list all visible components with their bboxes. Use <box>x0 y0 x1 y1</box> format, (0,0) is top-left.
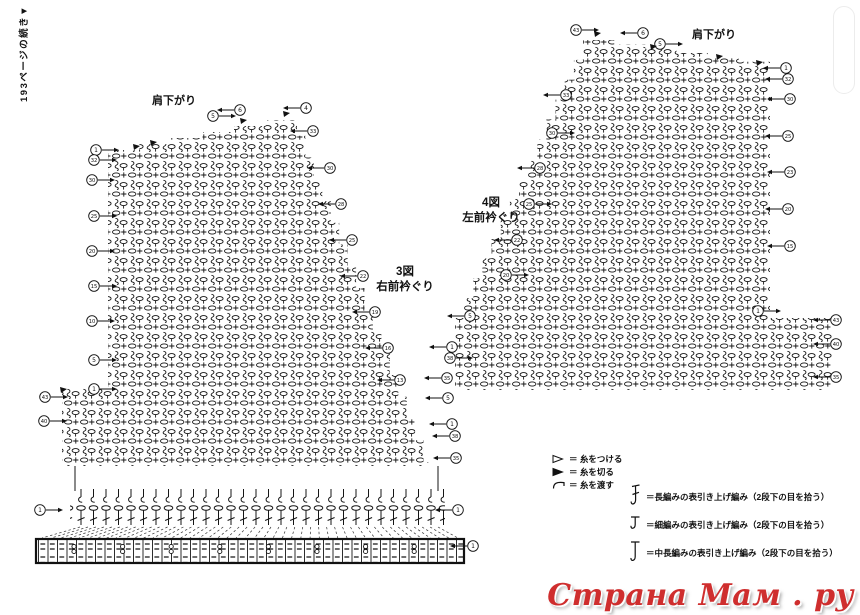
fan-line <box>162 527 183 538</box>
row-marker: 1 <box>35 505 63 516</box>
site-watermark: Страна Мам . ру <box>547 578 854 613</box>
faint-side-watermark <box>833 6 855 94</box>
row-marker: 6 <box>217 105 245 116</box>
fig3-number: 3図 <box>364 265 446 280</box>
fan-line <box>60 527 95 538</box>
attach-yarn-icon <box>552 454 569 464</box>
marker-arrow <box>217 108 222 113</box>
fig3-shoulder-label: 肩下がり <box>152 92 196 108</box>
fan-line <box>438 527 458 538</box>
marker-arrow <box>425 396 430 401</box>
buttonhole <box>315 544 319 548</box>
fan-line <box>255 527 263 538</box>
marker-arrow <box>620 31 625 36</box>
fan-line <box>208 527 223 538</box>
row-number: 40 <box>41 419 48 425</box>
front-post-half-icon <box>628 540 646 566</box>
fan-line <box>116 527 144 538</box>
row-number: 5 <box>658 41 662 48</box>
marker-arrow <box>517 166 522 171</box>
row-number: 30 <box>327 166 334 172</box>
row-number: 38 <box>452 434 459 440</box>
fan-line <box>273 527 279 538</box>
fan-line <box>358 527 365 538</box>
row-number: 13 <box>397 378 404 384</box>
row-number: 1 <box>784 65 788 72</box>
fan-line <box>406 527 421 538</box>
row-number: 5 <box>92 357 96 364</box>
row-number: 40 <box>833 342 840 348</box>
row-number: 20 <box>503 273 510 279</box>
row-number: 6 <box>238 107 242 114</box>
fan-line <box>97 527 127 538</box>
fan-line <box>335 527 338 538</box>
marker-arrow <box>283 106 288 111</box>
buttonhole <box>218 544 222 548</box>
front-post-treble-icon <box>628 484 646 510</box>
marker-arrow <box>424 376 429 381</box>
row-marker: 23 <box>767 167 795 178</box>
legend-fp-single: ＝細編みの表引き上げ編み（2段下の目を拾う） <box>628 511 838 539</box>
fan-line <box>153 527 176 538</box>
buttonhole <box>72 549 76 553</box>
fan-line <box>398 527 412 538</box>
row-marker: 38 <box>432 431 460 442</box>
row-number: 20 <box>89 249 96 255</box>
fan-line <box>181 527 200 538</box>
fig3-caption: 3図 右前衿ぐり <box>364 265 446 295</box>
row-number: 33 <box>310 129 317 135</box>
row-number: 5 <box>446 395 450 402</box>
row-number: 1 <box>456 507 460 514</box>
row-number: 43 <box>573 28 580 34</box>
buttonhole <box>412 549 416 553</box>
carry-yarn-icon <box>552 480 569 490</box>
buttonhole <box>364 549 368 553</box>
fan-line <box>343 527 348 538</box>
row-number: 32 <box>91 158 98 164</box>
fig4-caption: 4図 左前衿ぐり <box>450 196 532 226</box>
buttonhole <box>218 549 222 553</box>
fan-line <box>292 527 295 538</box>
row-number: 15 <box>91 284 98 290</box>
legend-fp-treble: ＝長編みの表引き上げ編み（2段下の目を拾う） <box>628 483 838 511</box>
marker-arrow <box>231 114 236 119</box>
row-number: 25 <box>785 134 792 140</box>
fan-line <box>282 527 286 538</box>
row-number: 1 <box>756 308 760 315</box>
cut-yarn-mark <box>283 111 290 117</box>
row-number: 16 <box>385 346 392 352</box>
row-number: 1 <box>450 344 454 351</box>
row-number: 4 <box>304 105 308 112</box>
page-continuation-note: 193ページの続き▼ <box>16 5 30 102</box>
fan-line <box>414 527 430 538</box>
row-number: 15 <box>787 244 794 250</box>
row-marker: 1 <box>429 419 457 430</box>
fan-line <box>107 527 136 538</box>
fan-line <box>301 527 303 538</box>
row-marker: 33 <box>543 90 571 101</box>
legend-cut-yarn-text: ＝ 糸を切る <box>569 466 614 478</box>
row-number: 28 <box>338 202 345 208</box>
row-marker: 30 <box>767 94 795 105</box>
row-marker: 1 <box>429 342 457 353</box>
row-number: 20 <box>785 207 792 213</box>
row-number: 28 <box>537 166 544 172</box>
fig3-name: 右前衿ぐり <box>364 280 446 295</box>
row-marker: 15 <box>767 241 795 252</box>
marker-arrow <box>429 422 434 427</box>
fan-line <box>199 527 215 538</box>
buttonhole <box>364 544 368 548</box>
row-number: 23 <box>787 170 794 176</box>
marker-arrow <box>433 456 438 461</box>
row-number: 25 <box>91 214 98 220</box>
fan-line <box>327 527 329 538</box>
buttonhole <box>266 549 270 553</box>
row-marker: 35 <box>424 373 452 384</box>
fan-line <box>171 527 191 538</box>
buttonhole <box>169 549 173 553</box>
row-number: 5 <box>211 113 215 120</box>
fig3-edge-strip <box>70 489 445 525</box>
row-number: 30 <box>549 131 556 137</box>
fig4-shoulder-label: 肩下がり <box>692 26 736 42</box>
row-number: 6 <box>641 30 645 37</box>
legend-attach-yarn-text: ＝ 糸をつける <box>569 453 622 465</box>
fan-line <box>366 527 374 538</box>
buttonhole <box>169 544 173 548</box>
row-number: 1 <box>94 147 98 154</box>
legend-carry-yarn: ＝ 糸を渡す <box>552 478 622 491</box>
row-number: 35 <box>833 375 840 381</box>
row-marker: 4 <box>283 103 311 114</box>
row-number: 33 <box>563 93 570 99</box>
legend-cut-yarn: ＝ 糸を切る <box>552 465 622 478</box>
row-marker: 6 <box>620 28 648 39</box>
fan-line <box>79 527 112 538</box>
row-number: 10 <box>89 319 96 325</box>
row-marker: 5 <box>425 393 453 404</box>
row-number: 22 <box>514 238 521 244</box>
crochet-pattern-page: 1323025201510514340564333028252219161351… <box>0 0 860 615</box>
cut-yarn-icon <box>552 467 569 477</box>
fan-line <box>227 527 239 538</box>
stitch-legend: ＝長編みの表引き上げ編み（2段下の目を拾う） ＝細編みの表引き上げ編み（2段下の… <box>628 483 838 567</box>
row-number: 5 <box>468 313 472 320</box>
buttonhole <box>315 549 319 553</box>
row-marker: 5 <box>655 39 683 50</box>
marker-arrow <box>678 42 683 47</box>
buttonhole <box>266 544 270 548</box>
fan-line <box>430 527 449 538</box>
buttonhole <box>121 549 125 553</box>
legend-fp-half: ＝中長編みの表引き上げ編み（2段下の目を拾う） <box>628 539 838 567</box>
row-marker: 5 <box>208 111 236 122</box>
row-number: 1 <box>38 507 42 514</box>
row-number: 35 <box>453 456 460 462</box>
fan-line <box>310 527 311 538</box>
yarn-legend: ＝ 糸をつける ＝ 糸を切る ＝ 糸を渡す <box>552 452 622 491</box>
fan-line <box>390 527 402 538</box>
fan-line <box>319 527 320 538</box>
row-number: 35 <box>444 376 451 382</box>
row-number: 1 <box>92 386 96 393</box>
row-number: 19 <box>372 310 379 316</box>
fig3-button-band <box>36 539 464 563</box>
fan-line <box>264 527 271 538</box>
buttonhole <box>412 544 416 548</box>
row-marker: 35 <box>433 453 461 464</box>
marker-arrow <box>58 508 63 513</box>
legend-attach-yarn: ＝ 糸をつける <box>552 452 622 465</box>
marker-arrow <box>432 434 437 439</box>
legend-fp-half-text: ＝中長編みの表引き上げ編み（2段下の目を拾う） <box>646 547 838 559</box>
front-post-single-icon <box>628 514 646 536</box>
fan-line <box>218 527 232 538</box>
fan-line <box>422 527 439 538</box>
row-number: 38 <box>447 356 454 362</box>
row-number: 43 <box>42 395 49 401</box>
buttonhole <box>121 544 125 548</box>
row-number: 1 <box>471 543 475 550</box>
row-number: 30 <box>787 97 794 103</box>
cut-yarn-mark <box>240 118 247 124</box>
fan-line <box>245 527 255 538</box>
fig4-name: 左前衿ぐり <box>450 211 532 226</box>
legend-fp-treble-text: ＝長編みの表引き上げ編み（2段下の目を拾う） <box>646 491 829 503</box>
fig4-number: 4図 <box>450 196 532 211</box>
marker-arrow <box>776 309 781 314</box>
cut-yarn-mark <box>133 144 140 150</box>
fan-line <box>51 527 88 538</box>
marker-arrow <box>429 345 434 350</box>
row-number: 30 <box>89 178 96 184</box>
marker-arrow <box>543 93 548 98</box>
fan-line <box>88 527 120 538</box>
cut-yarn-mark <box>594 31 601 37</box>
row-number: 25 <box>349 238 356 244</box>
buttonhole <box>72 544 76 548</box>
fan-line <box>350 527 356 538</box>
marker-arrow <box>447 314 452 319</box>
row-number: 1 <box>450 421 454 428</box>
fan-line <box>144 527 168 538</box>
legend-fp-single-text: ＝細編みの表引き上げ編み（2段下の目を拾う） <box>646 519 829 531</box>
row-number: 32 <box>785 77 792 83</box>
legend-carry-yarn-text: ＝ 糸を渡す <box>569 479 614 491</box>
fan-line <box>190 527 207 538</box>
fan-line <box>374 527 384 538</box>
row-number: 43 <box>833 318 840 324</box>
